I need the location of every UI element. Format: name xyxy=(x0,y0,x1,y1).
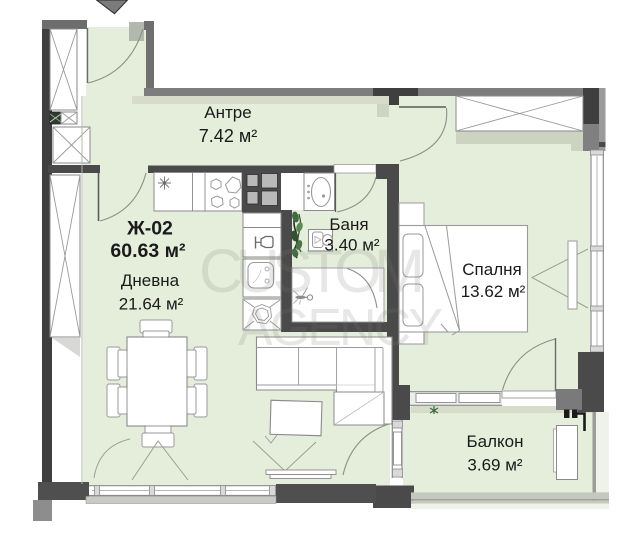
svg-text:Дневна: Дневна xyxy=(121,271,180,290)
svg-text:Ж-02: Ж-02 xyxy=(126,218,173,240)
svg-text:3.40 м²: 3.40 м² xyxy=(324,236,379,255)
svg-text:CUSTOM: CUSTOM xyxy=(199,237,425,305)
svg-text:Спалня: Спалня xyxy=(462,260,521,279)
svg-text:Баня: Баня xyxy=(329,215,368,234)
svg-text:3.69 м²: 3.69 м² xyxy=(467,456,522,475)
svg-text:Антре: Антре xyxy=(204,103,251,122)
svg-text:Балкон: Балкон xyxy=(466,432,523,451)
svg-text:7.42 м²: 7.42 м² xyxy=(199,126,257,146)
svg-text:13.62 м²: 13.62 м² xyxy=(461,282,526,301)
svg-text:21.64 м²: 21.64 м² xyxy=(119,295,184,314)
svg-text:AGENCY: AGENCY xyxy=(238,299,443,357)
svg-text:60.63 м²: 60.63 м² xyxy=(110,240,186,262)
